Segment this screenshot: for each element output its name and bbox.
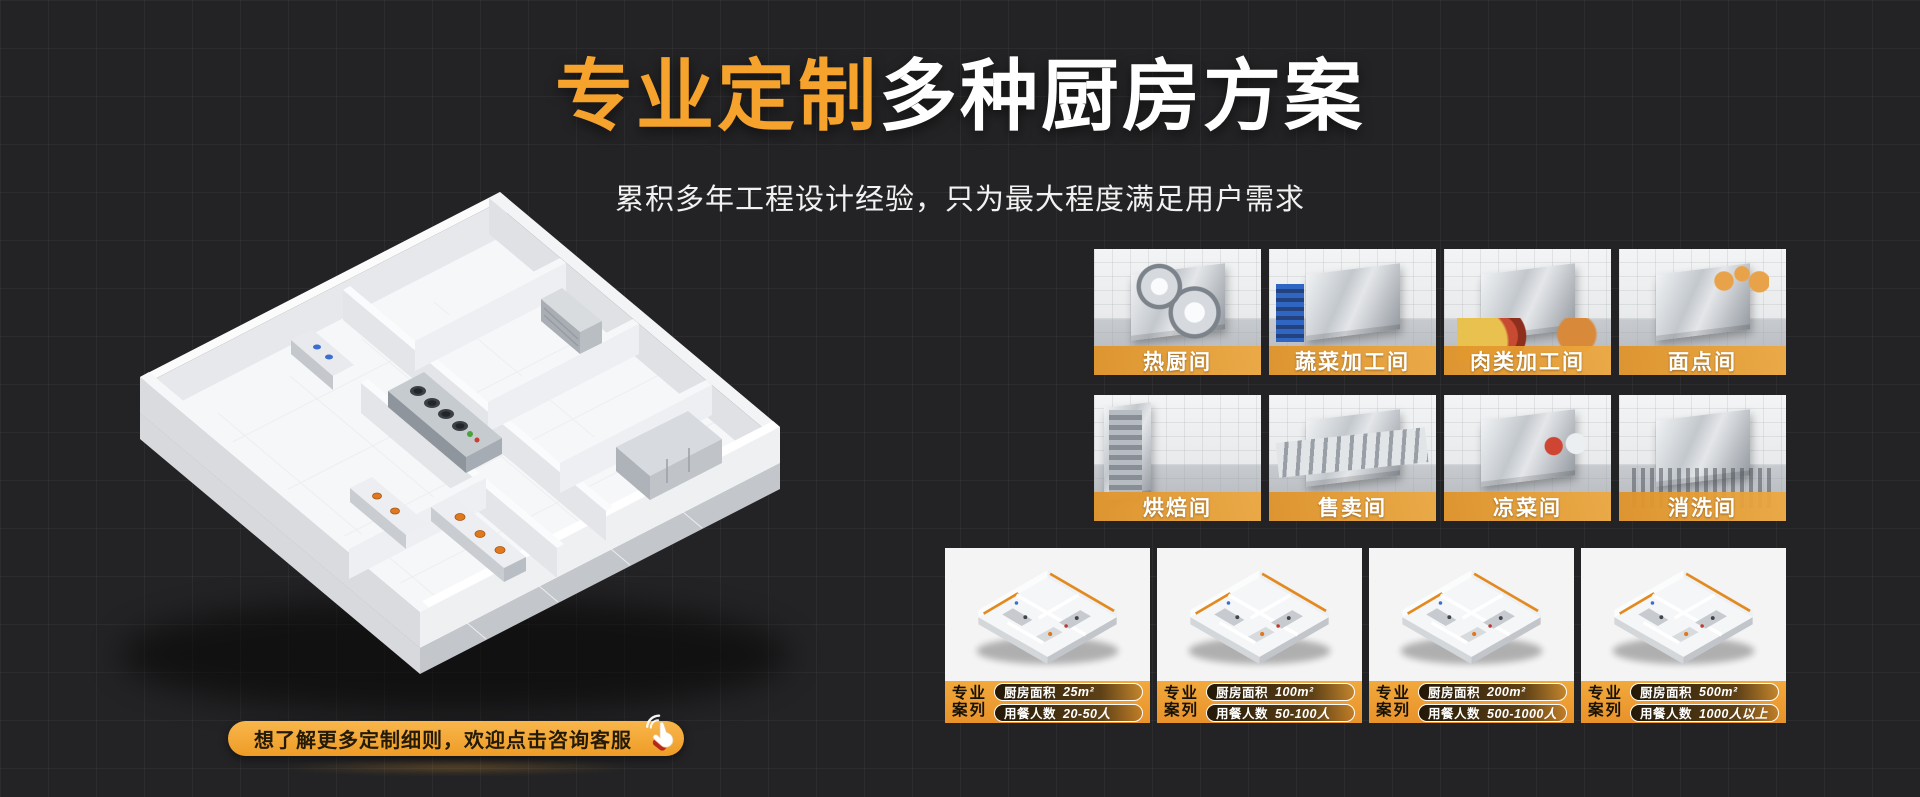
- case-tag-line2: 案列: [1164, 702, 1199, 719]
- room-label: 肉类加工间: [1444, 346, 1611, 375]
- room-grid: 热厨间 蔬菜加工间 肉类加工间 面点间 烘焙间 售卖间 凉菜间 消洗间: [1094, 249, 1786, 521]
- case-pills: 厨房面积200m² 用餐人数500-1000人: [1418, 683, 1567, 722]
- room-card-cold-dishes: 凉菜间: [1444, 395, 1611, 521]
- area-label: 厨房面积: [1428, 682, 1480, 701]
- case-tag-line1: 专业: [952, 685, 987, 702]
- case-tag: 专业 案列: [1164, 685, 1199, 720]
- room-card-dishwashing: 消洗间: [1619, 395, 1786, 521]
- case-tag: 专业 案列: [1376, 685, 1411, 720]
- room-card-hot-kitchen: 热厨间: [1094, 249, 1261, 375]
- room-label: 售卖间: [1269, 492, 1436, 521]
- capacity-pill: 用餐人数1000人以上: [1630, 704, 1779, 722]
- case-tag-line1: 专业: [1376, 685, 1411, 702]
- page-title: 专业定制多种厨房方案: [0, 52, 1920, 142]
- consult-cta-label: 想了解更多定制细则，欢迎点击咨询客服: [254, 724, 632, 753]
- case-card-100: 专业 案列 厨房面积100m² 用餐人数50-100人: [1157, 548, 1362, 723]
- case-tag-line1: 专业: [1164, 685, 1199, 702]
- area-pill: 厨房面积500m²: [1630, 683, 1779, 701]
- case-info-bar: 专业 案列 厨房面积500m² 用餐人数1000人以上: [1581, 681, 1786, 723]
- capacity-label: 用餐人数: [1004, 703, 1056, 722]
- title-rest: 多种厨房方案: [879, 52, 1365, 140]
- capacity-pill: 用餐人数50-100人: [1206, 704, 1355, 722]
- case-info-bar: 专业 案列 厨房面积25m² 用餐人数20-50人: [945, 681, 1150, 723]
- capacity-pill: 用餐人数500-1000人: [1418, 704, 1567, 722]
- area-value: 500m²: [1699, 685, 1738, 699]
- capacity-label: 用餐人数: [1428, 703, 1480, 722]
- case-tag: 专业 案列: [952, 685, 987, 720]
- capacity-label: 用餐人数: [1640, 703, 1692, 722]
- case-thumbnail-illustration: [1369, 548, 1574, 681]
- room-label: 消洗间: [1619, 492, 1786, 521]
- case-card-25: 专业 案列 厨房面积25m² 用餐人数20-50人: [945, 548, 1150, 723]
- area-label: 厨房面积: [1640, 682, 1692, 701]
- case-pills: 厨房面积25m² 用餐人数20-50人: [994, 683, 1143, 722]
- area-value: 100m²: [1275, 685, 1314, 699]
- hero-banner: 专业定制多种厨房方案 累积多年工程设计经验，只为最大程度满足用户需求: [0, 0, 1920, 797]
- area-pill: 厨房面积200m²: [1418, 683, 1567, 701]
- room-card-baking: 烘焙间: [1094, 395, 1261, 521]
- consult-cta-button[interactable]: 想了解更多定制细则，欢迎点击咨询客服: [228, 721, 684, 756]
- area-label: 厨房面积: [1004, 682, 1056, 701]
- capacity-label: 用餐人数: [1216, 703, 1268, 722]
- case-tag-line2: 案列: [952, 702, 987, 719]
- case-thumbnail-illustration: [1581, 548, 1786, 681]
- room-card-pastry: 面点间: [1619, 249, 1786, 375]
- area-label: 厨房面积: [1216, 682, 1268, 701]
- room-label: 凉菜间: [1444, 492, 1611, 521]
- room-card-meat-processing: 肉类加工间: [1444, 249, 1611, 375]
- capacity-value: 500-1000人: [1487, 703, 1557, 722]
- case-tag-line2: 案列: [1588, 702, 1623, 719]
- room-label: 热厨间: [1094, 346, 1261, 375]
- case-pills: 厨房面积500m² 用餐人数1000人以上: [1630, 683, 1779, 722]
- case-tag: 专业 案列: [1588, 685, 1623, 720]
- title-highlight: 专业定制: [555, 52, 879, 140]
- case-row: 专业 案列 厨房面积25m² 用餐人数20-50人 专业 案列 厨房面积100m…: [945, 548, 1786, 723]
- case-card-500: 专业 案列 厨房面积500m² 用餐人数1000人以上: [1581, 548, 1786, 723]
- case-info-bar: 专业 案列 厨房面积100m² 用餐人数50-100人: [1157, 681, 1362, 723]
- room-label: 面点间: [1619, 346, 1786, 375]
- isometric-floorplan-illustration: [55, 192, 825, 754]
- room-label: 蔬菜加工间: [1269, 346, 1436, 375]
- case-pills: 厨房面积100m² 用餐人数50-100人: [1206, 683, 1355, 722]
- case-tag-line1: 专业: [1588, 685, 1623, 702]
- capacity-value: 1000人以上: [1699, 703, 1768, 722]
- case-tag-line2: 案列: [1376, 702, 1411, 719]
- case-card-200: 专业 案列 厨房面积200m² 用餐人数500-1000人: [1369, 548, 1574, 723]
- case-thumbnail-illustration: [1157, 548, 1362, 681]
- capacity-pill: 用餐人数20-50人: [994, 704, 1143, 722]
- room-label: 烘焙间: [1094, 492, 1261, 521]
- area-pill: 厨房面积25m²: [994, 683, 1143, 701]
- case-thumbnail-illustration: [945, 548, 1150, 681]
- case-info-bar: 专业 案列 厨房面积200m² 用餐人数500-1000人: [1369, 681, 1574, 723]
- room-card-vegetable-processing: 蔬菜加工间: [1269, 249, 1436, 375]
- area-value: 200m²: [1487, 685, 1526, 699]
- room-card-serving: 售卖间: [1269, 395, 1436, 521]
- area-value: 25m²: [1063, 685, 1094, 699]
- area-pill: 厨房面积100m²: [1206, 683, 1355, 701]
- capacity-value: 20-50人: [1063, 703, 1110, 722]
- capacity-value: 50-100人: [1275, 703, 1330, 722]
